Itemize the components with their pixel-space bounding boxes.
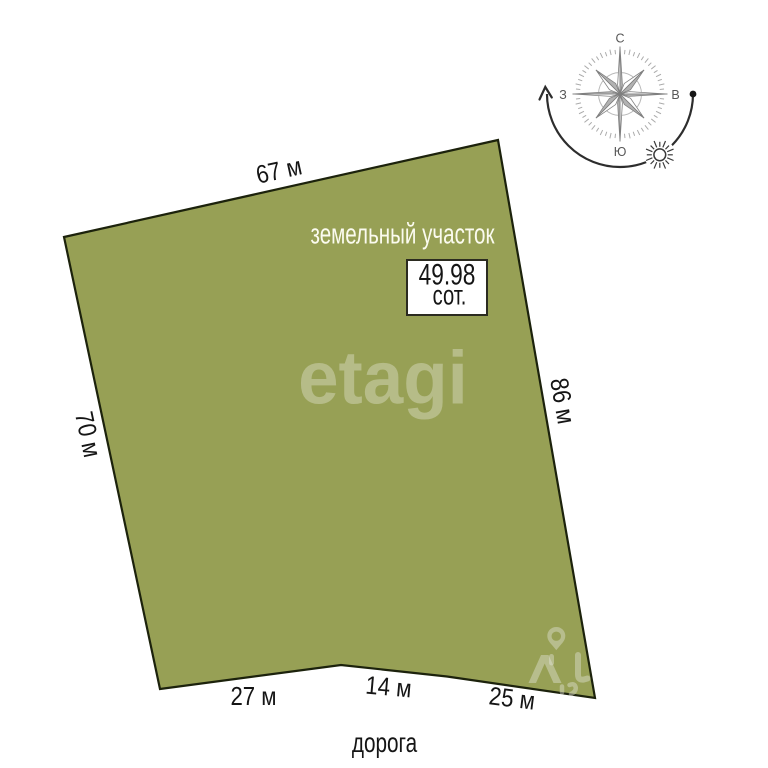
svg-text:70 м: 70 м <box>69 409 107 460</box>
svg-text:etagi: etagi <box>298 335 468 419</box>
svg-text:дорога: дорога <box>352 728 418 759</box>
svg-text:В: В <box>671 88 679 102</box>
svg-text:сот.: сот. <box>433 280 467 311</box>
svg-text:86 м: 86 м <box>544 376 580 426</box>
svg-text:С: С <box>615 32 624 46</box>
svg-text:земельный участок: земельный участок <box>311 218 496 250</box>
svg-text:27 м: 27 м <box>230 683 276 712</box>
svg-text:14 м: 14 м <box>364 671 412 704</box>
svg-text:Ю: Ю <box>614 145 627 159</box>
svg-text:25 м: 25 м <box>487 682 536 716</box>
svg-text:З: З <box>559 88 567 102</box>
